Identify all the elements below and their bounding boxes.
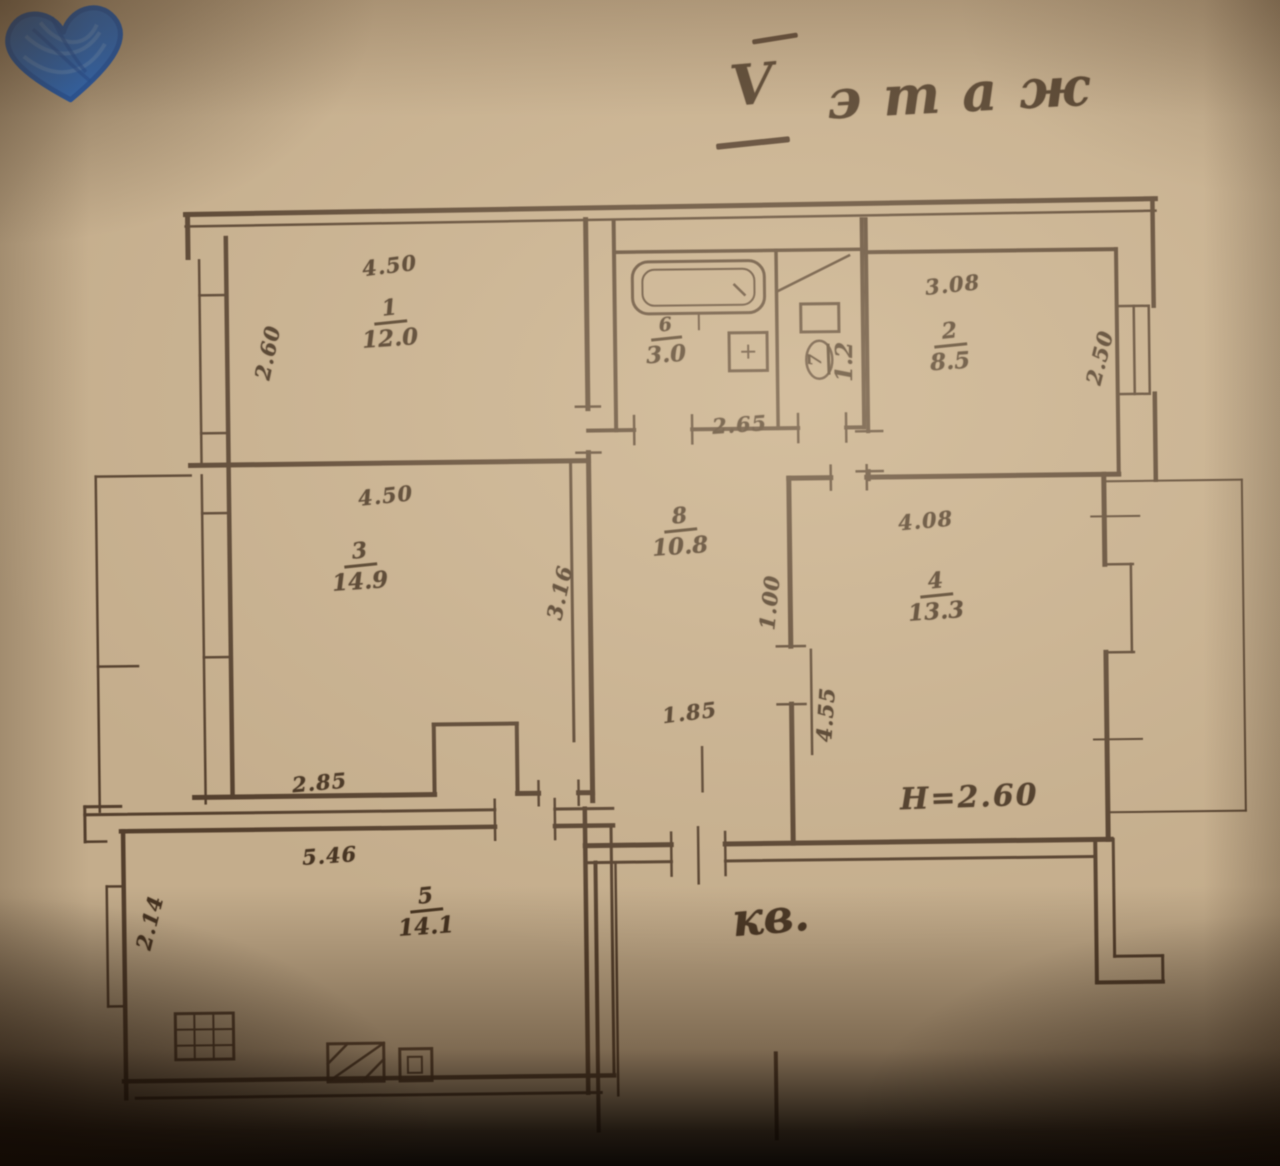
bathroom-label: 6 3.0 (646, 316, 686, 367)
wc-label: 7 1.2 (806, 339, 859, 382)
room4-label: 4 13.3 (908, 570, 964, 624)
floor-plan-photo: V этаж 4.50 2.60 1 12.0 6 3.0 2.65 7 1.2 (0, 0, 1280, 1166)
dim-room4-width: 4.08 (897, 506, 954, 536)
room2-label: 2 8.5 (930, 320, 970, 374)
dim-kitchen-width: 5.46 (301, 841, 358, 870)
kitchen-label: 5 14.1 (398, 885, 454, 939)
ceiling-height-note: Н=2.60 (899, 778, 1039, 818)
floor-plan-sketch: V этаж 4.50 2.60 1 12.0 6 3.0 2.65 7 1.2 (0, 0, 1280, 1166)
dim-bathroom-width: 2.65 (711, 410, 768, 439)
kitchen-sink-icon (175, 1013, 234, 1060)
floor-plan-drawing (0, 0, 1280, 1166)
fixtures-group (166, 260, 848, 1084)
room1-label: 1 12.0 (362, 297, 418, 351)
dim-room3-lower-width: 2.85 (291, 768, 348, 798)
room3-label: 3 14.9 (332, 540, 388, 594)
dim-hall-depth: 4.55 (811, 686, 840, 743)
floor-numeral: V (727, 50, 776, 120)
hall-label: 8 10.8 (652, 505, 708, 559)
blue-heart-doodle (0, 0, 137, 119)
toilet-icon (801, 304, 839, 332)
apartment-abbrev: кв. (730, 887, 812, 948)
